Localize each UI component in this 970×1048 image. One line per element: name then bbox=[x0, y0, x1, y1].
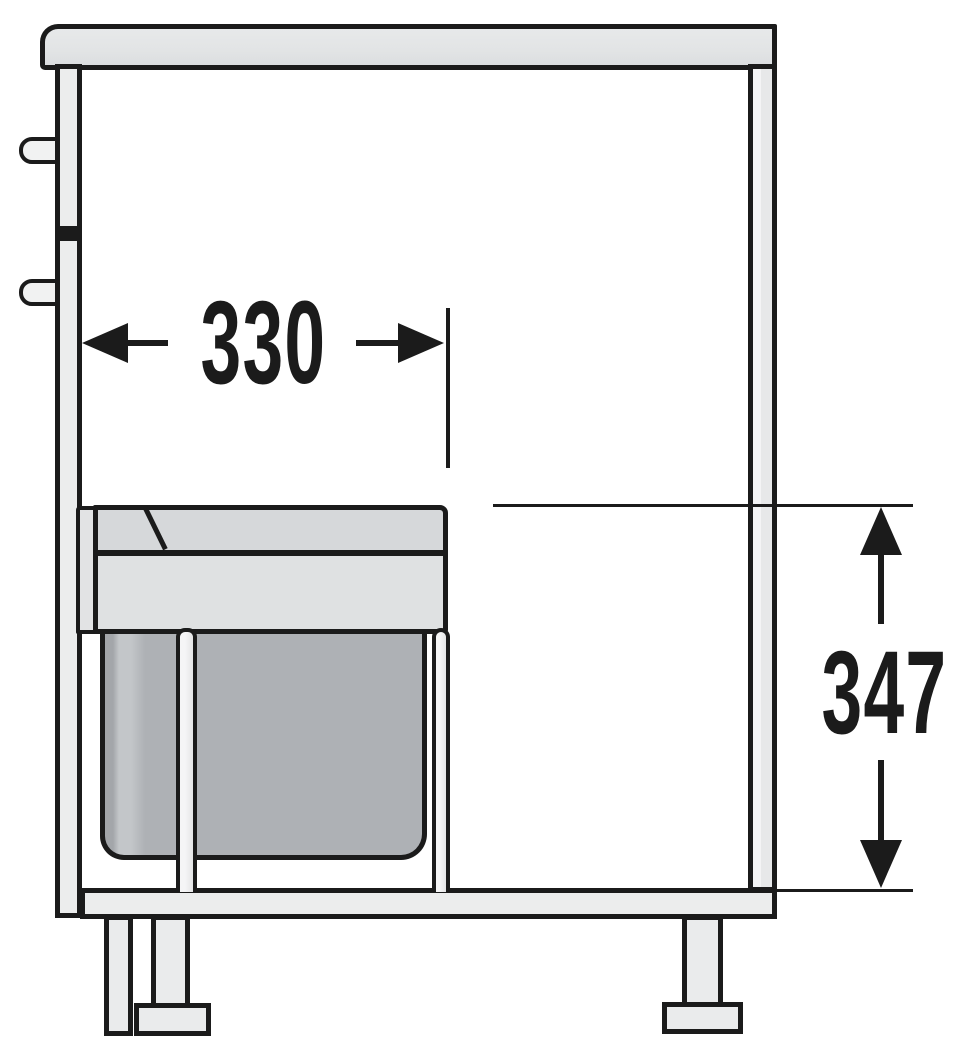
width-dimension-label: 330 bbox=[163, 291, 363, 395]
left-front-leg bbox=[104, 915, 133, 1036]
right-leg-foot-plate bbox=[662, 1002, 743, 1034]
height-arrow-down bbox=[860, 840, 902, 888]
height-arrow-down-shaft bbox=[878, 760, 884, 840]
height-arrow-up bbox=[860, 507, 902, 555]
height-dimension-value: 347 bbox=[821, 634, 947, 752]
width-arrow-left bbox=[82, 323, 128, 363]
cabinet-bottom-panel bbox=[80, 888, 777, 919]
right-leg bbox=[682, 915, 723, 1010]
bin-frame-rail-right bbox=[432, 628, 450, 892]
door-panel-joint bbox=[55, 226, 82, 239]
width-extension-line bbox=[446, 308, 450, 468]
waste-bin-dimension-diagram: 330 347 bbox=[0, 0, 970, 1048]
countertop-panel bbox=[40, 24, 777, 70]
height-extension-line-top bbox=[493, 504, 913, 507]
bin-carrier-frame bbox=[93, 551, 448, 634]
bin-frame-rail-left bbox=[176, 628, 197, 892]
cabinet-right-side-panel bbox=[748, 64, 777, 892]
door-upper-panel bbox=[55, 64, 82, 231]
height-extension-line-bottom bbox=[748, 889, 913, 892]
left-leg-foot-plate bbox=[134, 1003, 211, 1036]
height-dimension-label: 347 bbox=[784, 641, 970, 745]
width-arrow-left-shaft bbox=[126, 340, 168, 346]
width-dimension-value: 330 bbox=[200, 284, 326, 402]
width-arrow-right bbox=[398, 323, 444, 363]
height-arrow-up-shaft bbox=[878, 550, 884, 624]
left-back-leg bbox=[151, 915, 190, 1011]
